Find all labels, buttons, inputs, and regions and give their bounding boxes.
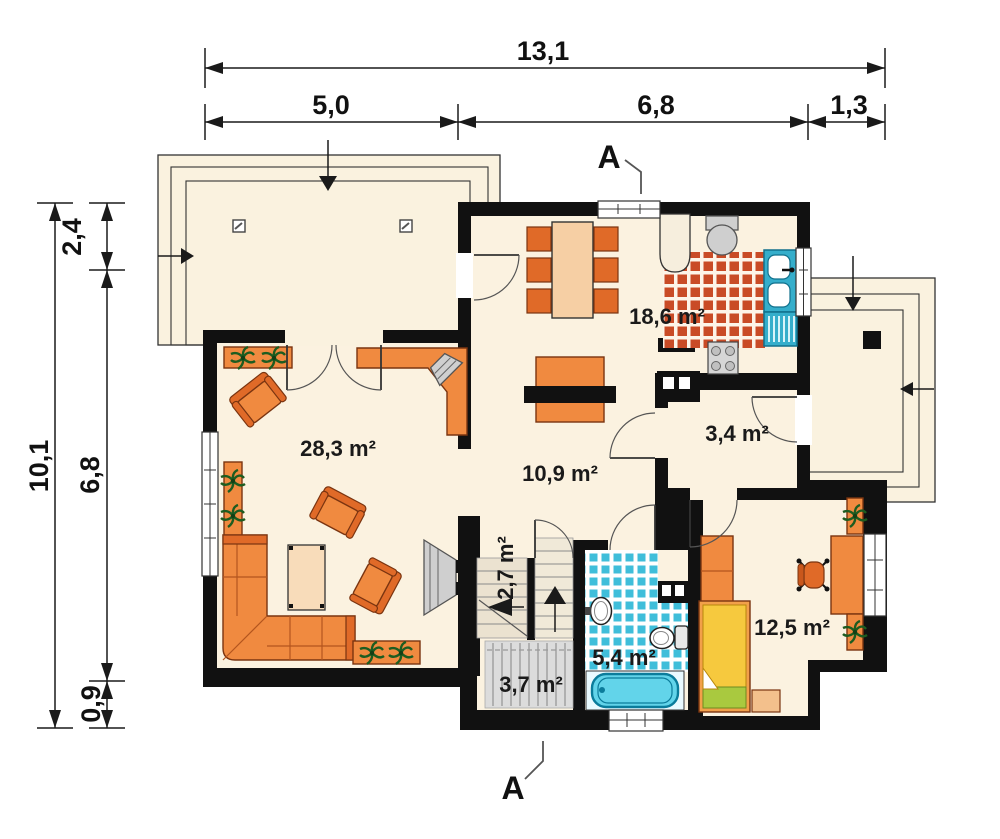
terrace-side <box>808 256 935 502</box>
window <box>202 432 218 576</box>
room-label-bathroom: 5,4 m² <box>592 645 656 670</box>
pillow <box>703 687 746 708</box>
dining-table <box>552 222 593 318</box>
coffee-table <box>288 545 325 610</box>
dim-top-seg-3: 1,3 <box>830 90 868 120</box>
stove-icon <box>708 342 738 374</box>
bathroom <box>585 550 690 710</box>
chimney-icon <box>658 581 690 603</box>
dim-top-total: 13,1 <box>517 36 570 66</box>
plant-shelf <box>353 641 420 664</box>
section-marker-top: A <box>597 139 641 194</box>
dining-chair <box>594 227 618 251</box>
dining-chair <box>527 227 551 251</box>
office-chair <box>797 559 830 592</box>
plant-shelf <box>843 498 867 534</box>
section-marker-bottom: A <box>501 741 543 806</box>
room-label-bedroom: 12,5 m² <box>754 615 830 640</box>
dim-top-seg-2: 6,8 <box>637 90 675 120</box>
counter-end-wall <box>660 214 690 272</box>
dining-chair <box>594 289 618 313</box>
dining-chair <box>527 258 551 282</box>
plant-shelf <box>843 614 867 650</box>
room-label-wc: 3,4 m² <box>705 421 769 446</box>
room-label-vestibule: 3,7 m² <box>499 672 563 697</box>
dim-left-seg-3: 0,9 <box>76 685 106 723</box>
terrace-post-icon <box>863 331 881 349</box>
floor-plan-page: 28,3 m² 10,9 m² 18,6 m² 3,4 m² 2,7 m² 3,… <box>0 0 1000 839</box>
fridge-icon <box>706 216 738 255</box>
kitchen-sink-icon <box>764 250 797 346</box>
sideboard <box>524 357 616 422</box>
chimney-icon <box>657 371 700 402</box>
living-hall-opening <box>455 447 474 518</box>
bathtub-icon <box>586 671 684 710</box>
room-label-living: 28,3 m² <box>300 436 376 461</box>
dining-chair <box>527 289 551 313</box>
dim-left-seg-2: 6,8 <box>75 456 105 494</box>
dining-chair <box>594 258 618 282</box>
window <box>796 248 811 316</box>
dim-left-seg-1: 2,4 <box>57 218 87 256</box>
bed <box>699 601 750 712</box>
terrace-front <box>158 140 500 345</box>
room-label-stairs: 2,7 m² <box>493 536 518 600</box>
dim-left-total: 10,1 <box>24 440 54 493</box>
window <box>598 201 660 218</box>
window <box>864 534 886 616</box>
section-label: A <box>501 770 524 806</box>
section-label: A <box>597 139 620 175</box>
bathroom-door-opening <box>608 538 655 552</box>
desk <box>831 536 863 614</box>
bedroom-door-opening <box>690 488 737 500</box>
wc-door-opening <box>655 408 668 458</box>
dim-top-seg-1: 5,0 <box>312 90 350 120</box>
plant-shelf <box>221 462 245 537</box>
roof-drain-icon <box>400 220 412 232</box>
nightstand <box>752 690 780 712</box>
room-label-kitchen: 18,6 m² <box>629 304 705 329</box>
plant-shelf <box>224 347 292 369</box>
room-label-hall: 10,9 m² <box>522 461 598 486</box>
floor-plan-drawing: 28,3 m² 10,9 m² 18,6 m² 3,4 m² 2,7 m² 3,… <box>0 0 1000 839</box>
window <box>609 710 663 731</box>
roof-drain-icon <box>233 220 245 232</box>
